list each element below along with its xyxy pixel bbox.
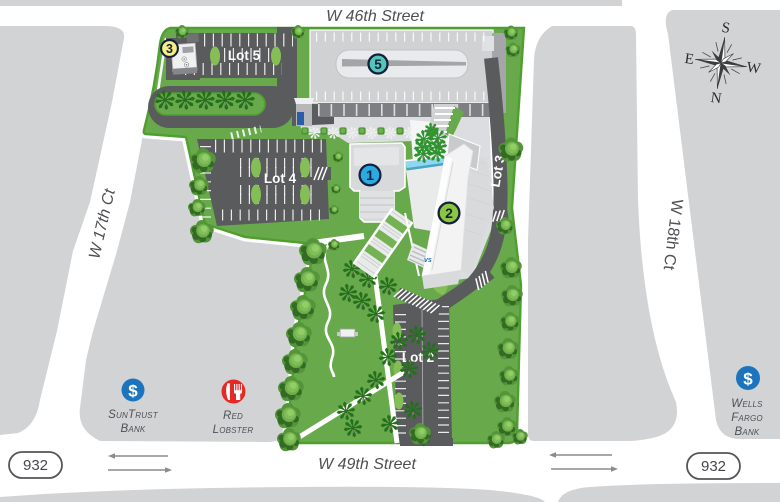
svg-text:SunTrust: SunTrust [108, 409, 159, 421]
svg-text:Bank: Bank [735, 426, 760, 438]
svg-text:3: 3 [166, 42, 173, 56]
svg-text:vs: vs [424, 257, 432, 264]
svg-text:$: $ [128, 382, 138, 401]
svg-text:W 46th Street: W 46th Street [326, 8, 424, 25]
svg-text:Bank: Bank [121, 423, 146, 435]
svg-text:Wells: Wells [731, 398, 763, 410]
svg-text:932: 932 [701, 458, 726, 475]
svg-text:W 49th Street: W 49th Street [318, 456, 416, 473]
svg-text:$: $ [743, 370, 753, 389]
svg-text:Fargo: Fargo [731, 412, 763, 424]
svg-text:5: 5 [374, 57, 382, 72]
svg-text:Lobster: Lobster [213, 424, 254, 436]
svg-text:Red: Red [223, 410, 243, 422]
svg-text:Lot 4: Lot 4 [264, 171, 297, 186]
svg-text:1: 1 [366, 167, 374, 183]
svg-text:932: 932 [23, 457, 48, 474]
svg-text:2: 2 [445, 205, 453, 221]
svg-text:Lot 5: Lot 5 [228, 48, 261, 63]
